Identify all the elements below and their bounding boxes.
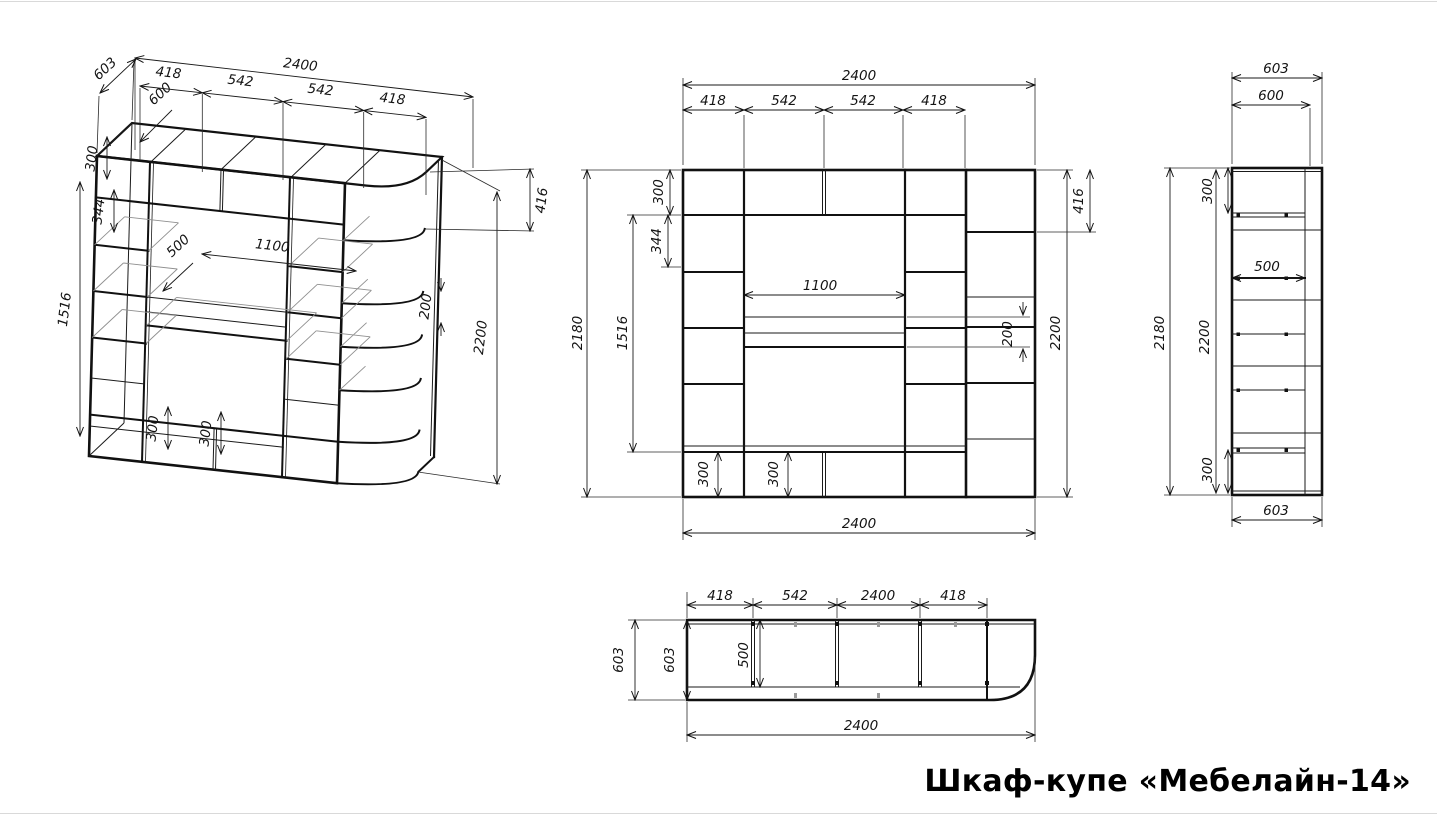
iso-dim-seg-418-left: 418 <box>155 64 182 83</box>
front-dim-niche-1100: 1100 <box>803 278 837 294</box>
front-dim-bottom-300-b: 300 <box>766 461 782 487</box>
front-dim-cell-344: 344 <box>649 228 665 254</box>
front-dim-seg-542-a: 542 <box>771 93 797 109</box>
iso-cabinet-wireframe <box>89 123 442 484</box>
front-dim-gap-200: 200 <box>1000 321 1016 347</box>
iso-dim-bottom-300-b: 300 <box>197 420 216 448</box>
plan-dim-seg-542: 542 <box>782 588 808 604</box>
plan-dim-seg-2400: 2400 <box>861 588 895 604</box>
side-dim-height-2180: 2180 <box>1152 316 1168 350</box>
front-dim-height-2180: 2180 <box>570 316 586 350</box>
iso-dim-depth-500: 500 <box>163 231 193 260</box>
scan-edge-bottom <box>0 813 1437 814</box>
scan-edge-top <box>0 1 1437 2</box>
drawing-title: Шкаф-купе «Мебелайн-14» <box>0 764 1411 799</box>
front-dim-seg-542-b: 542 <box>850 93 876 109</box>
blueprint-canvas: 603 418 600 2400 542 542 418 300 344 151… <box>0 0 1437 815</box>
front-dim-width-bottom: 2400 <box>842 516 876 532</box>
side-dim-depth-600: 600 <box>1258 88 1284 104</box>
front-view: 2400 418 542 542 418 2180 1516 300 344 1… <box>575 50 1105 555</box>
side-view: 603 600 2180 300 500 2200 300 603 <box>1150 50 1437 560</box>
front-dim-height-2200: 2200 <box>1048 316 1064 350</box>
iso-dim-top-416: 416 <box>533 187 552 215</box>
iso-dim-seg-542-b: 542 <box>307 81 334 100</box>
plan-dim-shelf-500: 500 <box>736 642 752 668</box>
side-dim-height-2200: 2200 <box>1197 320 1213 354</box>
front-dim-seg-418-l: 418 <box>700 93 726 109</box>
front-dim-height-1516: 1516 <box>615 316 631 350</box>
plan-dim-depth-603-inner: 603 <box>662 647 678 673</box>
plan-dim-depth-603-outer: 603 <box>611 647 627 673</box>
iso-dim-width-2400: 2400 <box>282 55 318 75</box>
plan-dim-seg-418-r: 418 <box>940 588 966 604</box>
front-outline <box>683 170 1035 497</box>
iso-dim-seg-418-right: 418 <box>379 90 406 109</box>
iso-dim-cell-344: 344 <box>90 198 109 226</box>
front-dim-cell-300: 300 <box>651 179 667 205</box>
side-outline <box>1232 168 1322 495</box>
iso-dim-bottom-300-a: 300 <box>144 415 163 443</box>
side-dim-depth-603-top: 603 <box>1263 61 1289 77</box>
plan-dim-seg-418-l: 418 <box>707 588 733 604</box>
front-dim-top-416: 416 <box>1071 188 1087 214</box>
iso-dim-height-1516: 1516 <box>55 291 75 327</box>
front-dim-seg-418-r: 418 <box>921 93 947 109</box>
front-dim-bottom-300-a: 300 <box>696 461 712 487</box>
axonometric-view: 603 418 600 2400 542 542 418 300 344 151… <box>60 20 590 545</box>
iso-dim-depth-600: 600 <box>145 79 175 108</box>
plan-dim-width-2400: 2400 <box>844 718 878 734</box>
iso-dim-depth-603: 603 <box>90 54 120 83</box>
iso-dim-seg-542-a: 542 <box>227 72 254 91</box>
iso-dim-height-2200: 2200 <box>471 319 491 355</box>
iso-dim-gap-200: 200 <box>417 293 436 321</box>
iso-dim-niche-1100: 1100 <box>254 236 290 256</box>
front-dimensions: 2400 418 542 542 418 2180 1516 300 344 1… <box>570 68 1096 540</box>
iso-dim-cell-300: 300 <box>83 145 102 173</box>
side-dim-cell-300-top: 300 <box>1200 178 1216 204</box>
plan-dimensions: 418 542 2400 418 603 603 500 2400 <box>611 588 1035 742</box>
side-dim-depth-603-bottom: 603 <box>1263 503 1289 519</box>
front-dim-width-top: 2400 <box>842 68 876 84</box>
side-dim-cell-300-bottom: 300 <box>1200 457 1216 483</box>
plan-view: 418 542 2400 418 603 603 500 2400 <box>600 580 1100 780</box>
side-dimensions: 603 600 2180 300 500 2200 300 603 <box>1152 61 1322 527</box>
side-dim-shelf-500: 500 <box>1254 259 1280 275</box>
